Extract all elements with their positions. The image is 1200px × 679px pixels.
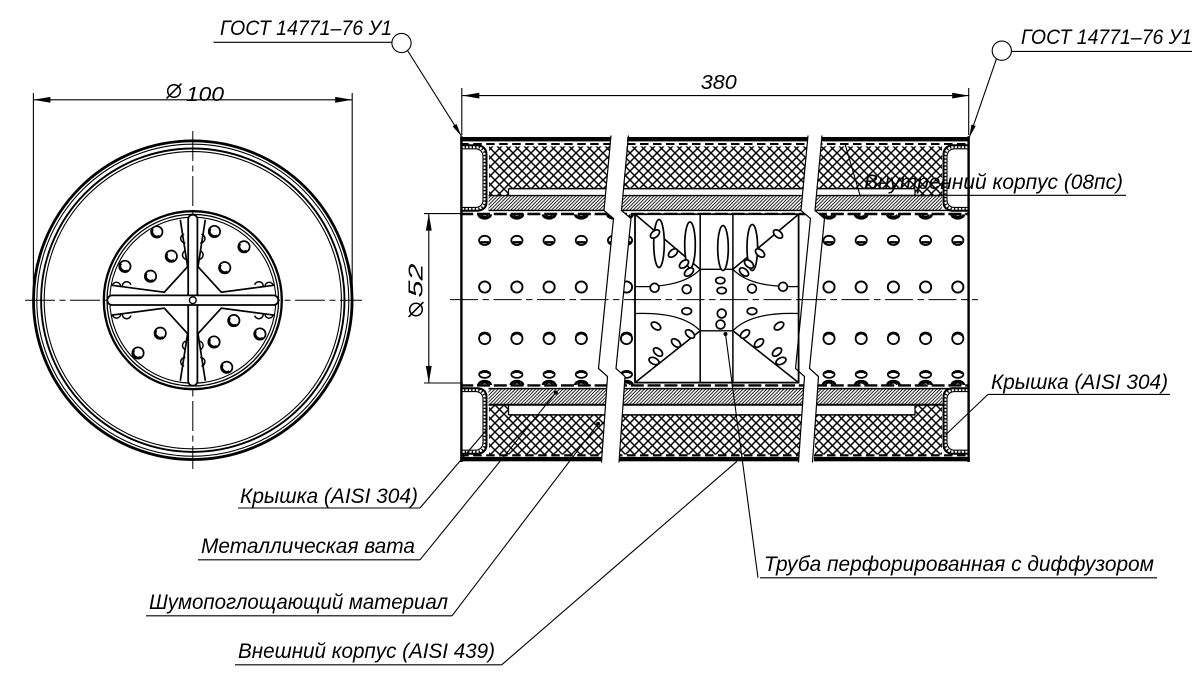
svg-text:ГОСТ 14771–76 У1: ГОСТ 14771–76 У1 — [220, 17, 392, 40]
svg-text:Металлическая вата: Металлическая вата — [201, 535, 415, 558]
svg-text:Крышка (AISI 304): Крышка (AISI 304) — [991, 371, 1168, 394]
svg-text:ГОСТ 14771–76 У1: ГОСТ 14771–76 У1 — [1021, 26, 1192, 49]
svg-text:Внутренний корпус (08пс): Внутренний корпус (08пс) — [864, 171, 1123, 194]
svg-text:Шумопоглощающий материал: Шумопоглощающий материал — [149, 591, 448, 614]
svg-text:380: 380 — [701, 71, 738, 94]
svg-text:Крышка (AISI 304): Крышка (AISI 304) — [240, 485, 418, 508]
svg-text:100: 100 — [186, 83, 225, 106]
svg-text:Внешний корпус (AISI 439): Внешний корпус (AISI 439) — [238, 640, 495, 663]
svg-text:Труба перфорированная с диффуз: Труба перфорированная с диффузором — [764, 553, 1154, 576]
svg-text:52: 52 — [405, 263, 428, 298]
